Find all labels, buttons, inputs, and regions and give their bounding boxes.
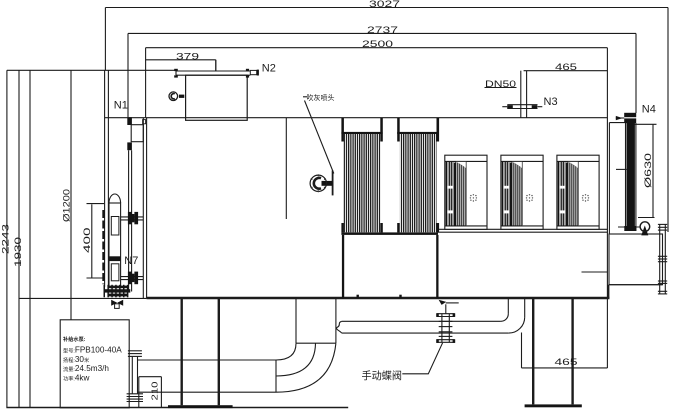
svg-text:DN50: DN50	[485, 79, 516, 90]
svg-text:补给水泵:: 补给水泵:	[62, 335, 86, 343]
svg-text:N1: N1	[114, 100, 128, 112]
svg-text:N2: N2	[262, 62, 276, 74]
svg-text:Ø1200: Ø1200	[62, 189, 72, 222]
svg-text:N3: N3	[544, 96, 558, 108]
svg-text:210: 210	[150, 381, 160, 400]
svg-text:2500: 2500	[362, 39, 393, 50]
svg-text:400: 400	[82, 228, 93, 254]
svg-text:N4: N4	[642, 103, 656, 115]
svg-text:465: 465	[555, 357, 578, 368]
svg-text:Ø630: Ø630	[643, 153, 653, 188]
svg-text:1930: 1930	[13, 237, 24, 267]
svg-text:2243: 2243	[1, 224, 12, 254]
svg-text:吹灰喷头: 吹灰喷头	[307, 93, 335, 102]
svg-text:N7: N7	[124, 255, 138, 267]
svg-text:379: 379	[176, 51, 199, 62]
svg-text:手动蝶阀: 手动蝶阀	[362, 369, 403, 382]
svg-text:465: 465	[555, 62, 577, 73]
svg-text:2737: 2737	[367, 25, 398, 36]
svg-text:3027: 3027	[369, 0, 400, 10]
